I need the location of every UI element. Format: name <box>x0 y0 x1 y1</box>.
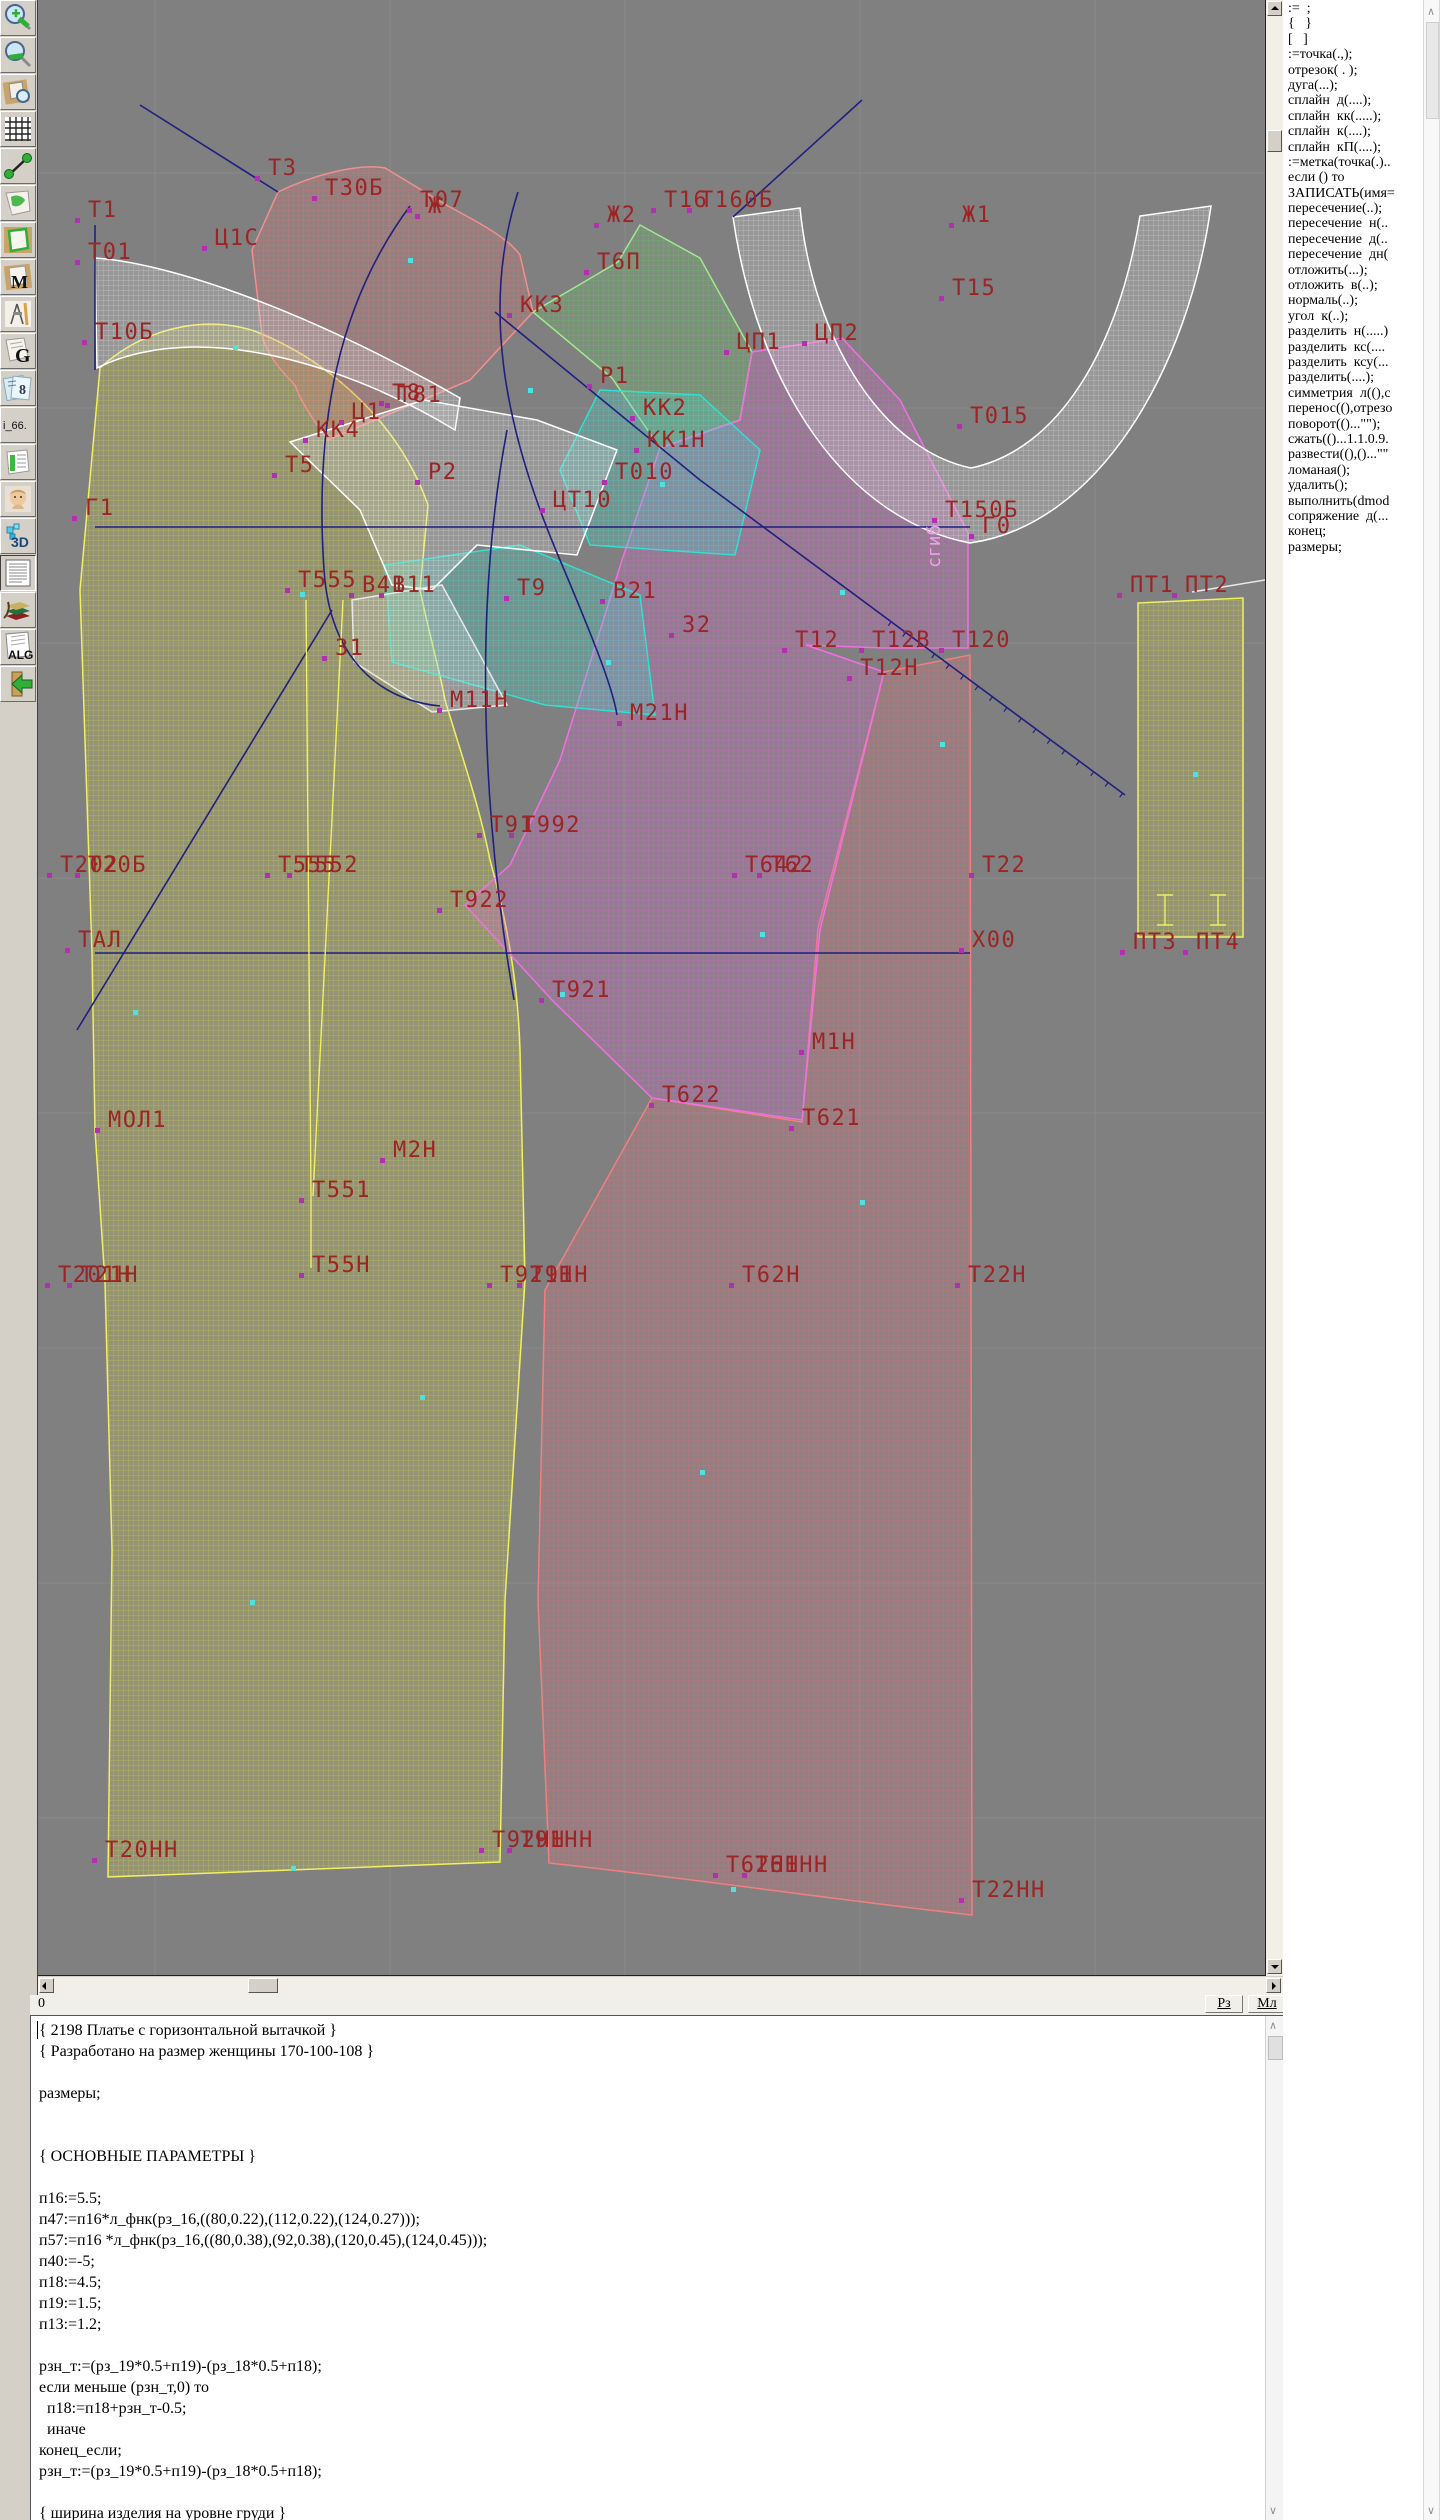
editor-line: иначе <box>39 2419 487 2440</box>
alg-doc-button[interactable]: ALG <box>0 629 36 665</box>
point-marker[interactable] <box>957 424 962 429</box>
point-label: Т015 <box>970 404 1029 429</box>
command-item[interactable]: дуга(...); <box>1288 78 1395 93</box>
point-marker[interactable] <box>507 1848 512 1853</box>
point-marker[interactable] <box>67 1283 72 1288</box>
point-label: Р2 <box>428 460 458 485</box>
node-marker[interactable] <box>940 742 945 747</box>
point-marker[interactable] <box>82 340 87 345</box>
command-item[interactable]: сплайн д(....); <box>1288 93 1395 108</box>
node-marker[interactable] <box>528 388 533 393</box>
point-label: КК1Н <box>647 428 706 453</box>
command-item[interactable]: развести((),()..."" <box>1288 447 1395 462</box>
point-marker[interactable] <box>272 473 277 478</box>
svg-text:3D: 3D <box>11 534 29 550</box>
node-marker[interactable] <box>291 1866 296 1871</box>
editor-line: п19:=1.5; <box>39 2293 487 2314</box>
point-marker[interactable] <box>407 208 412 213</box>
node-marker[interactable] <box>731 1887 736 1892</box>
editor-line <box>39 2062 487 2083</box>
editor-line: п13:=1.2; <box>39 2314 487 2335</box>
point-label: Т555 <box>298 568 357 593</box>
command-item[interactable]: { } <box>1288 16 1395 31</box>
editor-line: если меньше (рзн_т,0) то <box>39 2377 487 2398</box>
command-item[interactable]: сплайн кП(....); <box>1288 140 1395 155</box>
point-label: Т552 <box>300 853 359 878</box>
node-marker[interactable] <box>133 1010 138 1015</box>
command-item[interactable]: пересечение н(.. <box>1288 216 1395 231</box>
rz-button[interactable]: Рз <box>1205 1995 1243 2013</box>
point-marker[interactable] <box>742 1873 747 1878</box>
point-label: Т12В <box>872 628 931 653</box>
sizes-button[interactable]: 8 <box>0 370 36 406</box>
node-marker[interactable] <box>840 590 845 595</box>
3d-button[interactable]: 3D <box>0 518 36 554</box>
pattern-canvas[interactable]: Т1Т01Т10БТ3Ц1СТ30БЖТ07Ж2Т6ПТ16Т160БЖ1Т15… <box>38 0 1265 1976</box>
triangle-up-icon <box>1271 6 1279 10</box>
canvas-vscrollbar[interactable] <box>1265 0 1283 1976</box>
point-marker[interactable] <box>847 676 852 681</box>
scroll-right-button[interactable] <box>1266 1978 1281 1993</box>
editor-line: п16:=5.5; <box>39 2188 487 2209</box>
point-label: ЦП2 <box>815 321 859 346</box>
exit-button[interactable] <box>0 666 36 702</box>
point-marker[interactable] <box>517 1283 522 1288</box>
program-editor[interactable]: { 2198 Платье с горизонтальной вытачкой … <box>30 2015 1283 2520</box>
point-label: Г0 <box>982 514 1012 539</box>
point-label: М11Н <box>450 688 509 713</box>
point-marker[interactable] <box>969 534 974 539</box>
point-marker[interactable] <box>959 948 964 953</box>
point-label: Ц1С <box>215 226 259 251</box>
svg-text:8: 8 <box>19 383 26 398</box>
command-item[interactable]: сопряжение д(... <box>1288 509 1395 524</box>
scroll-left-button[interactable] <box>39 1978 54 1993</box>
point-label: М1Н <box>812 1030 856 1055</box>
command-item[interactable]: разделить(....); <box>1288 370 1395 385</box>
point-marker[interactable] <box>799 1050 804 1055</box>
editor-line: п57:=п16 *л_фнк(рз_16,((80,0.38),(92,0.3… <box>39 2230 487 2251</box>
editor-line: { ОСНОВНЫЕ ПАРАМЕТРЫ } <box>39 2146 487 2167</box>
point-marker[interactable] <box>539 998 544 1003</box>
point-label: Р1 <box>600 364 630 389</box>
point-label: В21 <box>613 579 657 604</box>
point-label: ЦП1 <box>737 330 781 355</box>
point-marker[interactable] <box>487 1283 492 1288</box>
editor-line: рзн_т:=(рз_19*0.5+п19)-(рз_18*0.5+п18); <box>39 2461 487 2482</box>
pattern-piece[interactable] <box>1138 598 1243 937</box>
scroll-down-button[interactable] <box>1267 1959 1282 1974</box>
pattern-outline-button[interactable] <box>0 222 36 258</box>
point-label: Т22Н <box>968 1263 1027 1288</box>
point-marker[interactable] <box>287 873 292 878</box>
point-marker[interactable] <box>687 208 692 213</box>
i66-button[interactable]: i_66. <box>0 407 36 443</box>
panel-vscrollbar[interactable]: ∧ ∨ <box>1423 0 1440 2520</box>
editor-vscrollbar[interactable]: ∧ ∨ <box>1265 2016 1283 2520</box>
point-marker[interactable] <box>437 908 442 913</box>
point-marker[interactable] <box>669 633 674 638</box>
point-marker[interactable] <box>339 420 344 425</box>
page-map-button[interactable] <box>0 185 36 221</box>
node-marker[interactable] <box>250 1600 255 1605</box>
command-item[interactable]: поворот(()...""); <box>1288 417 1395 432</box>
point-label: Т622 <box>662 1083 721 1108</box>
point-marker[interactable] <box>594 223 599 228</box>
point-marker[interactable] <box>732 873 737 878</box>
command-item[interactable]: [ ] <box>1288 32 1395 47</box>
point-label: Т01 <box>88 240 132 265</box>
command-panel: := ;{ }[ ]:=точка(.,);отрезок( . );дуга(… <box>1283 0 1423 2520</box>
point-marker[interactable] <box>477 833 482 838</box>
panel-scroll-thumb[interactable] <box>1426 22 1439 119</box>
point-marker[interactable] <box>602 480 607 485</box>
point-label: Т922 <box>450 888 509 913</box>
command-item[interactable]: угол к(..); <box>1288 309 1395 324</box>
point-label: Т07 <box>420 188 464 213</box>
editor-line: п40:=-5; <box>39 2251 487 2272</box>
point-label: М21Н <box>630 701 689 726</box>
editor-line: { Разработано на размер женщины 170-100-… <box>39 2041 487 2062</box>
point-marker[interactable] <box>932 518 937 523</box>
node-marker[interactable] <box>700 1470 705 1475</box>
point-marker[interactable] <box>939 648 944 653</box>
point-marker[interactable] <box>75 218 80 223</box>
point-label: Т91НН <box>520 1828 594 1853</box>
editor-line: рзн_т:=(рз_19*0.5+п19)-(рз_18*0.5+п18); <box>39 2356 487 2377</box>
editor-line: размеры; <box>39 2083 487 2104</box>
editor-line: { ширина изделия на уровне груди } <box>39 2503 487 2520</box>
command-item[interactable]: отложить в(..); <box>1288 278 1395 293</box>
point-label: КК2 <box>643 396 687 421</box>
point-marker[interactable] <box>729 1283 734 1288</box>
point-marker[interactable] <box>757 873 762 878</box>
point-label: Т61НН <box>755 1853 829 1878</box>
command-item[interactable]: разделить кс(.... <box>1288 340 1395 355</box>
point-marker[interactable] <box>634 448 639 453</box>
point-label: Т12 <box>795 628 839 653</box>
node-marker[interactable] <box>1193 772 1198 777</box>
point-label: ПТ1 <box>1130 573 1174 598</box>
point-marker[interactable] <box>92 1858 97 1863</box>
triangle-right-icon <box>1272 1982 1276 1990</box>
table-button[interactable] <box>0 444 36 480</box>
command-item[interactable]: пересечение д(.. <box>1288 232 1395 247</box>
node-marker[interactable] <box>560 992 565 997</box>
editor-line: { 2198 Платье с горизонтальной вытачкой … <box>39 2020 487 2041</box>
point-marker[interactable] <box>955 1283 960 1288</box>
point-marker[interactable] <box>75 873 80 878</box>
point-label: Т22 <box>982 853 1026 878</box>
zoom-in-button[interactable] <box>0 0 36 36</box>
point-marker[interactable] <box>479 1848 484 1853</box>
chevron-up-icon: ∧ <box>1427 5 1435 18</box>
point-label: ТАЛ <box>78 928 122 953</box>
grid-button[interactable] <box>0 111 36 147</box>
command-item[interactable]: отложить(...); <box>1288 263 1395 278</box>
point-label: Т551 <box>312 1178 371 1203</box>
point-marker[interactable] <box>959 1898 964 1903</box>
text-caret <box>37 2021 38 2039</box>
point-marker[interactable] <box>789 1126 794 1131</box>
point-label: Т992 <box>522 813 581 838</box>
books-button[interactable] <box>0 592 36 628</box>
svg-text:i_66.: i_66. <box>3 420 27 432</box>
command-item[interactable]: ломаная(); <box>1288 463 1395 478</box>
command-item[interactable]: отрезок( . ); <box>1288 63 1395 78</box>
point-label: Т20Б <box>88 853 147 878</box>
point-label: Т81 <box>398 383 442 408</box>
editor-text: { 2198 Платье с горизонтальной вытачкой … <box>39 2020 487 2520</box>
point-marker[interactable] <box>651 208 656 213</box>
point-marker[interactable] <box>617 721 622 726</box>
point-label: Т12Н <box>860 656 919 681</box>
point-marker[interactable] <box>95 1128 100 1133</box>
point-marker[interactable] <box>349 593 354 598</box>
point-marker[interactable] <box>299 1198 304 1203</box>
point-marker[interactable] <box>415 480 420 485</box>
point-marker[interactable] <box>584 270 589 275</box>
point-marker[interactable] <box>587 384 592 389</box>
point-marker[interactable] <box>312 196 317 201</box>
point-marker[interactable] <box>649 1103 654 1108</box>
point-label: Т5 <box>285 453 315 478</box>
editor-line <box>39 2104 487 2125</box>
node-marker[interactable] <box>860 1200 865 1205</box>
command-item[interactable]: :=метка(точка(.).. <box>1288 155 1395 170</box>
point-marker[interactable] <box>202 246 207 251</box>
point-label: Т621 <box>802 1106 861 1131</box>
point-marker[interactable] <box>299 1273 304 1278</box>
point-marker[interactable] <box>724 350 729 355</box>
point-label: ПТ2 <box>1185 573 1229 598</box>
point-label: Т3 <box>268 156 298 181</box>
svg-text:ALG: ALG <box>8 648 33 662</box>
point-label: Т20НН <box>105 1838 179 1863</box>
point-marker[interactable] <box>802 341 807 346</box>
point-label: Т30Б <box>325 176 384 201</box>
point-label: Т15 <box>952 276 996 301</box>
chevron-down-icon: ∨ <box>1427 2504 1435 2517</box>
editor-line: конец_если; <box>39 2440 487 2461</box>
status-bar: 0 Рз Мл <box>30 1995 1283 2015</box>
point-label: Т21Н <box>80 1263 139 1288</box>
status-value: 0 <box>38 1996 45 2012</box>
point-marker[interactable] <box>322 656 327 661</box>
point-label: ПТ3 <box>1133 930 1177 955</box>
hscroll-thumb[interactable] <box>248 1978 278 1993</box>
point-label: Т62Н <box>742 1263 801 1288</box>
point-label: З1 <box>335 636 365 661</box>
ml-button[interactable]: Мл <box>1248 1995 1286 2013</box>
point-label: Т22НН <box>972 1878 1046 1903</box>
point-label: Т160Б <box>700 188 774 213</box>
pattern-m-button[interactable]: M <box>0 259 36 295</box>
command-item[interactable]: нормаль(..); <box>1288 293 1395 308</box>
command-item[interactable]: сжать(()...1.1.0.9. <box>1288 432 1395 447</box>
point-label: Ж2 <box>607 203 637 228</box>
point-label: Т010 <box>615 460 674 485</box>
command-item[interactable]: конец; <box>1288 524 1395 539</box>
scroll-up-button[interactable] <box>1267 1 1282 16</box>
text-doc-button[interactable] <box>0 555 36 591</box>
command-list: := ;{ }[ ]:=точка(.,);отрезок( . );дуга(… <box>1288 1 1395 555</box>
point-marker[interactable] <box>969 873 974 878</box>
preview-zoom-button[interactable] <box>0 74 36 110</box>
point-label: Т921 <box>552 978 611 1003</box>
point-marker[interactable] <box>303 438 308 443</box>
command-item[interactable]: := ; <box>1288 1 1395 16</box>
point-label: Т6П <box>597 250 641 275</box>
command-item[interactable]: сплайн кк(.....); <box>1288 109 1395 124</box>
node-marker[interactable] <box>760 932 765 937</box>
point-marker[interactable] <box>437 708 442 713</box>
command-item[interactable]: разделить ксу(... <box>1288 355 1395 370</box>
svg-text:G: G <box>15 345 31 367</box>
point-marker[interactable] <box>75 260 80 265</box>
point-marker[interactable] <box>415 214 420 219</box>
zoom-out-button[interactable] <box>0 37 36 73</box>
point-label: Т62 <box>770 853 814 878</box>
command-item[interactable]: симметрия л((),с <box>1288 386 1395 401</box>
point-marker[interactable] <box>509 833 514 838</box>
g-doc-button[interactable]: G <box>0 333 36 369</box>
point-label: Х00 <box>972 928 1016 953</box>
photo-button[interactable] <box>0 481 36 517</box>
point-marker[interactable] <box>859 648 864 653</box>
node-marker[interactable] <box>420 1395 425 1400</box>
point-label: В11 <box>392 573 436 598</box>
node-marker[interactable] <box>300 592 305 597</box>
measure-button[interactable] <box>0 148 36 184</box>
point-marker[interactable] <box>782 648 787 653</box>
svg-text:M: M <box>11 272 28 292</box>
point-marker[interactable] <box>72 516 77 521</box>
point-marker[interactable] <box>949 223 954 228</box>
point-label: Г1 <box>85 496 115 521</box>
point-label: З2 <box>682 613 712 638</box>
vscroll-thumb[interactable] <box>1267 130 1282 152</box>
point-label: Т10Б <box>95 320 154 345</box>
node-marker[interactable] <box>408 258 413 263</box>
chevron-down-icon: ∨ <box>1269 2504 1277 2517</box>
point-marker[interactable] <box>285 588 290 593</box>
command-item[interactable]: пересечение(..); <box>1288 201 1395 216</box>
command-item[interactable]: перенос((),отрезо <box>1288 401 1395 416</box>
command-item[interactable]: если () то <box>1288 170 1395 185</box>
command-item[interactable]: :=точка(.,); <box>1288 47 1395 62</box>
chevron-up-icon: ∧ <box>1269 2019 1277 2032</box>
command-item[interactable]: разделить н(.....) <box>1288 324 1395 339</box>
editor-scroll-thumb[interactable] <box>1268 2036 1283 2060</box>
command-item[interactable]: выполнить(dmod <box>1288 494 1395 509</box>
node-marker[interactable] <box>233 345 238 350</box>
point-marker[interactable] <box>504 596 509 601</box>
node-marker[interactable] <box>660 482 665 487</box>
point-marker[interactable] <box>1120 950 1125 955</box>
point-marker[interactable] <box>385 403 390 408</box>
fold-label: сгиб <box>924 525 945 568</box>
node-marker[interactable] <box>606 660 611 665</box>
point-marker[interactable] <box>1183 950 1188 955</box>
point-label: Ц1 <box>352 400 382 425</box>
point-marker[interactable] <box>713 1873 718 1878</box>
point-label: ПТ4 <box>1196 930 1240 955</box>
editor-line: п18:=4.5; <box>39 2272 487 2293</box>
point-marker[interactable] <box>630 416 635 421</box>
point-marker[interactable] <box>600 599 605 604</box>
point-label: КК3 <box>520 293 564 318</box>
command-item[interactable]: сплайн к(....); <box>1288 124 1395 139</box>
canvas-hscrollbar[interactable] <box>38 1977 1283 1995</box>
drafting-tools-button[interactable] <box>0 296 36 332</box>
pattern-drawing[interactable]: Т1Т01Т10БТ3Ц1СТ30БЖТ07Ж2Т6ПТ16Т160БЖ1Т15… <box>38 0 1265 1975</box>
point-label: ЦТ10 <box>553 488 612 513</box>
command-item[interactable]: пересечение дн( <box>1288 247 1395 262</box>
point-label: Т55Н <box>312 1253 371 1278</box>
editor-line: п47:=п16*л_фнк(рз_16,((80,0.22),(112,0.2… <box>39 2209 487 2230</box>
editor-line <box>39 2482 487 2503</box>
point-marker[interactable] <box>45 1283 50 1288</box>
command-item[interactable]: ЗАПИСАТЬ(имя= <box>1288 186 1395 201</box>
point-marker[interactable] <box>939 296 944 301</box>
point-marker[interactable] <box>379 593 384 598</box>
point-label: Т120 <box>952 628 1011 653</box>
point-label: Т9 <box>517 576 547 601</box>
point-label: Ж1 <box>962 203 992 228</box>
point-marker[interactable] <box>265 873 270 878</box>
editor-line <box>39 2125 487 2146</box>
point-marker[interactable] <box>255 176 260 181</box>
point-marker[interactable] <box>1172 593 1177 598</box>
point-marker[interactable] <box>47 873 52 878</box>
triangle-down-icon <box>1271 1965 1279 1969</box>
point-marker[interactable] <box>1117 593 1122 598</box>
point-marker[interactable] <box>540 508 545 513</box>
point-label: Т91Н <box>530 1263 589 1288</box>
command-item[interactable]: удалить(); <box>1288 478 1395 493</box>
point-marker[interactable] <box>65 948 70 953</box>
point-marker[interactable] <box>507 313 512 318</box>
point-label: МОЛ1 <box>108 1108 167 1133</box>
command-item[interactable]: размеры; <box>1288 540 1395 555</box>
point-label: Т1 <box>88 198 118 223</box>
editor-line: п18:=п18+рзн_т-0.5; <box>39 2398 487 2419</box>
editor-line <box>39 2335 487 2356</box>
point-label: М2Н <box>393 1138 437 1163</box>
point-marker[interactable] <box>380 1158 385 1163</box>
editor-line <box>39 2167 487 2188</box>
triangle-left-icon <box>42 1982 46 1990</box>
